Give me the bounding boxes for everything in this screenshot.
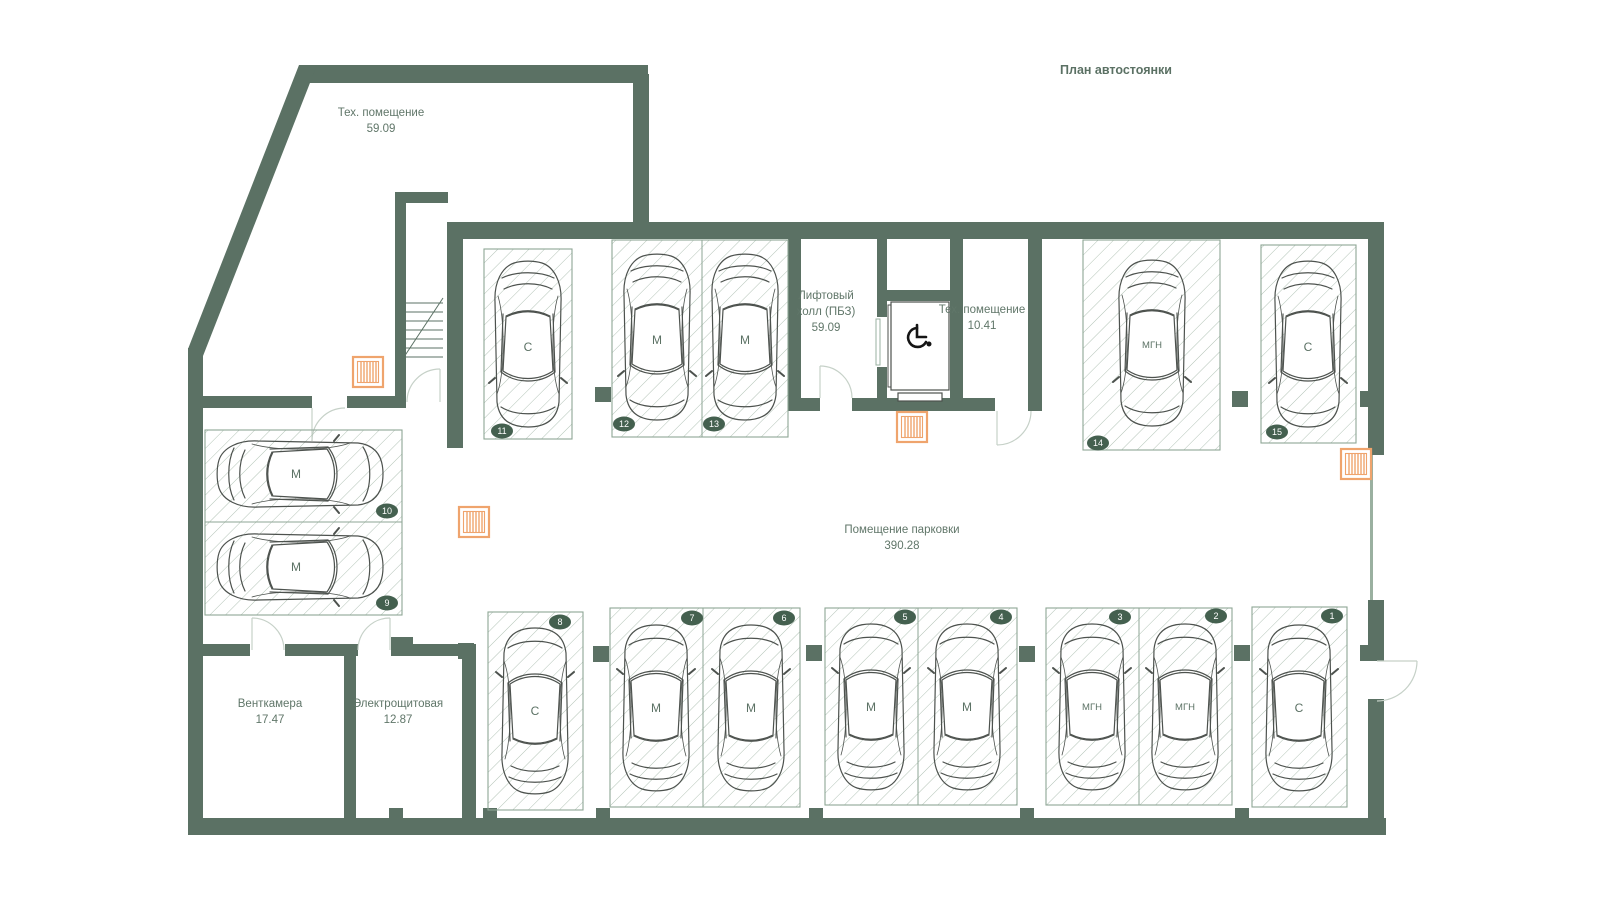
parking-spot-10-9: М М 10 9: [205, 430, 402, 615]
parking-spots: С 11 М М 12 13 МГН 14 С 15: [205, 240, 1356, 810]
spot-type-label: С: [531, 704, 540, 718]
vent-grille-icon: [459, 507, 489, 537]
spot-number-badge: 12: [613, 417, 635, 432]
svg-text:13: 13: [709, 419, 719, 429]
room-area-lift-hall: 59.09: [812, 322, 841, 334]
svg-text:10: 10: [382, 506, 392, 516]
spot-type-label: М: [291, 467, 301, 481]
svg-text:5: 5: [902, 612, 907, 622]
spot-number-badge: 4: [990, 610, 1012, 625]
spot-type-label: М: [746, 701, 756, 715]
room-label-electrical: Электрощитовая: [353, 698, 443, 710]
parking-spot-7-6: М М 7 6: [610, 608, 800, 807]
spot-number-badge: 7: [681, 611, 703, 626]
parking-spot-12-13: М М 12 13: [612, 240, 788, 437]
spot-type-label: М: [651, 701, 661, 715]
svg-text:12: 12: [619, 419, 629, 429]
spot-type-label: М: [291, 560, 301, 574]
room-area-electrical: 12.87: [384, 714, 413, 726]
door-lift-hall: [820, 366, 852, 398]
floor-plan: С 11 М М 12 13 МГН 14 С 15: [0, 0, 1601, 900]
door-exit-right: [1377, 661, 1417, 701]
spot-number-badge: 9: [376, 596, 398, 611]
room-area-vent-chamber: 17.47: [256, 714, 285, 726]
parking-spot-8: С 8: [488, 612, 583, 810]
svg-text:3: 3: [1117, 612, 1122, 622]
room-area-tech-small: 10.41: [968, 320, 997, 332]
spot-number-badge: 2: [1205, 609, 1227, 624]
spot-number-badge: 1: [1321, 609, 1343, 624]
spot-type-label: МГН: [1082, 702, 1102, 713]
spot-type-label: МГН: [1175, 702, 1195, 713]
svg-text:14: 14: [1093, 438, 1103, 448]
vent-grille-icon: [897, 412, 927, 442]
door-electrical: [358, 618, 390, 650]
vent-grille-icon: [1341, 449, 1371, 479]
parking-spot-14: МГН 14: [1083, 240, 1220, 451]
spot-type-label: С: [1304, 340, 1313, 354]
room-label-lift-hall-2: холл (ПБЗ): [797, 306, 856, 318]
spot-number-badge: 8: [549, 615, 571, 630]
svg-text:8: 8: [557, 617, 562, 627]
svg-text:7: 7: [689, 613, 694, 623]
spot-type-label: МГН: [1142, 340, 1162, 351]
door-vent-chamber: [252, 618, 284, 650]
spot-type-label: С: [1295, 701, 1304, 715]
spot-type-label: М: [866, 700, 876, 714]
spot-number-badge: 14: [1087, 436, 1109, 451]
parking-spot-1: С 1: [1252, 607, 1347, 807]
parking-spot-15: С 15: [1261, 245, 1356, 443]
room-area-tech-upper: 59.09: [367, 123, 396, 135]
svg-text:6: 6: [781, 613, 786, 623]
spot-type-label: С: [524, 340, 533, 354]
svg-text:15: 15: [1272, 427, 1282, 437]
door-stairs: [407, 369, 440, 402]
spot-type-label: М: [962, 700, 972, 714]
page-title: План автостоянки: [1060, 63, 1172, 77]
spot-type-label: М: [652, 333, 662, 347]
room-label-parking-hall: Помещение парковки: [844, 524, 959, 536]
parking-spot-3-2: МГН МГН 3 2: [1046, 608, 1232, 805]
spot-number-badge: 3: [1109, 610, 1131, 625]
spot-number-badge: 6: [773, 611, 795, 626]
room-label-lift-hall-1: Лифтовый: [798, 290, 854, 302]
spot-type-label: М: [740, 333, 750, 347]
room-label-tech-small: Тех. помещение: [939, 304, 1026, 316]
parking-spot-11: С 11: [484, 249, 572, 439]
svg-text:1: 1: [1329, 611, 1334, 621]
svg-text:2: 2: [1213, 611, 1218, 621]
spot-number-badge: 13: [703, 417, 725, 432]
spot-number-badge: 5: [894, 610, 916, 625]
spot-number-badge: 10: [376, 504, 398, 519]
vent-grille-icon: [353, 357, 383, 387]
svg-text:11: 11: [497, 426, 506, 436]
svg-text:9: 9: [384, 598, 389, 608]
room-area-parking-hall: 390.28: [884, 540, 919, 552]
spot-number-badge: 11: [491, 424, 513, 439]
svg-text:4: 4: [998, 612, 1003, 622]
room-label-vent-chamber: Венткамера: [238, 698, 303, 710]
stairs-icon: [402, 298, 443, 360]
door-tech-small: [997, 411, 1031, 445]
parking-spot-5-4: М М 5 4: [825, 608, 1017, 805]
spot-number-badge: 15: [1266, 425, 1288, 440]
room-label-tech-upper: Тех. помещение: [338, 107, 425, 119]
